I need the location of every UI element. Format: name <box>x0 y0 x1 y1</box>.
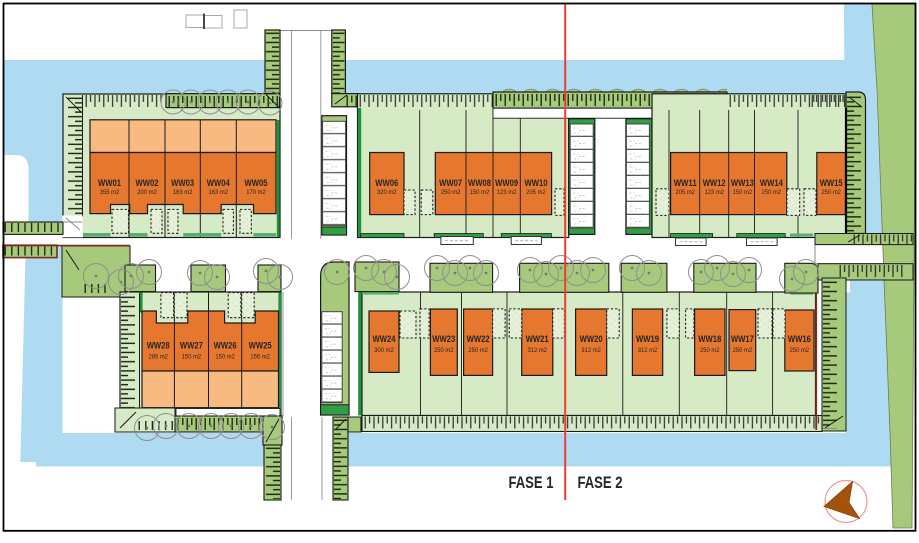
svg-text:WW19: WW19 <box>636 334 659 344</box>
svg-text:150 m2: 150 m2 <box>470 189 490 196</box>
svg-text:312 m2: 312 m2 <box>581 347 601 354</box>
svg-text:FASE 1: FASE 1 <box>509 474 554 492</box>
svg-text:WW08: WW08 <box>468 178 491 188</box>
svg-text:320 m2: 320 m2 <box>377 189 397 196</box>
svg-text:205 m2: 205 m2 <box>526 189 546 196</box>
svg-text:WW02: WW02 <box>136 178 159 188</box>
svg-text:WW28: WW28 <box>147 341 170 351</box>
svg-text:285 m2: 285 m2 <box>148 353 168 360</box>
svg-text:WW23: WW23 <box>432 334 455 344</box>
svg-text:156 m2: 156 m2 <box>250 353 270 360</box>
svg-text:WW27: WW27 <box>180 341 203 351</box>
svg-text:WW09: WW09 <box>495 178 518 188</box>
svg-text:WW03: WW03 <box>171 178 194 188</box>
svg-text:WW16: WW16 <box>788 334 811 344</box>
svg-text:250 m2: 250 m2 <box>434 347 454 354</box>
svg-text:WW26: WW26 <box>214 341 237 351</box>
svg-text:250 m2: 250 m2 <box>700 347 720 354</box>
svg-text:205 m2: 205 m2 <box>675 189 695 196</box>
svg-text:WW10: WW10 <box>525 178 548 188</box>
svg-text:WW13: WW13 <box>731 178 754 188</box>
svg-text:WW20: WW20 <box>580 334 603 344</box>
svg-text:250 m2: 250 m2 <box>762 189 782 196</box>
svg-text:WW11: WW11 <box>674 178 697 188</box>
svg-text:WW05: WW05 <box>245 178 268 188</box>
svg-text:WW18: WW18 <box>698 334 721 344</box>
svg-text:WW14: WW14 <box>760 178 784 188</box>
svg-text:250 m2: 250 m2 <box>441 189 461 196</box>
svg-text:312 m2: 312 m2 <box>638 347 658 354</box>
svg-text:WW15: WW15 <box>820 178 843 188</box>
svg-text:250 m2: 250 m2 <box>468 347 488 354</box>
svg-text:163 m2: 163 m2 <box>173 189 193 196</box>
svg-text:250 m2: 250 m2 <box>790 347 810 354</box>
svg-text:250 m2: 250 m2 <box>733 347 753 354</box>
svg-text:123 m2: 123 m2 <box>497 189 517 196</box>
svg-text:FASE 2: FASE 2 <box>578 474 623 492</box>
svg-text:312 m2: 312 m2 <box>527 347 547 354</box>
svg-text:WW01: WW01 <box>98 178 121 188</box>
svg-text:WW04: WW04 <box>207 178 231 188</box>
svg-text:WW12: WW12 <box>703 178 726 188</box>
svg-text:250 m2: 250 m2 <box>821 189 841 196</box>
svg-text:150 m2: 150 m2 <box>733 189 753 196</box>
svg-text:150 m2: 150 m2 <box>182 353 202 360</box>
svg-text:WW17: WW17 <box>731 334 754 344</box>
svg-text:WW21: WW21 <box>526 334 549 344</box>
svg-text:WW25: WW25 <box>249 341 272 351</box>
svg-text:WW24: WW24 <box>373 334 397 344</box>
svg-text:200 m2: 200 m2 <box>137 189 157 196</box>
svg-text:123 m2: 123 m2 <box>704 189 724 196</box>
svg-text:WW22: WW22 <box>467 334 490 344</box>
svg-text:163 m2: 163 m2 <box>209 189 229 196</box>
svg-text:WW06: WW06 <box>375 178 398 188</box>
svg-text:150 m2: 150 m2 <box>215 353 235 360</box>
svg-text:170 m2: 170 m2 <box>246 189 266 196</box>
svg-text:300 m2: 300 m2 <box>374 347 394 354</box>
svg-text:WW07: WW07 <box>439 178 462 188</box>
svg-text:355 m2: 355 m2 <box>100 189 120 196</box>
